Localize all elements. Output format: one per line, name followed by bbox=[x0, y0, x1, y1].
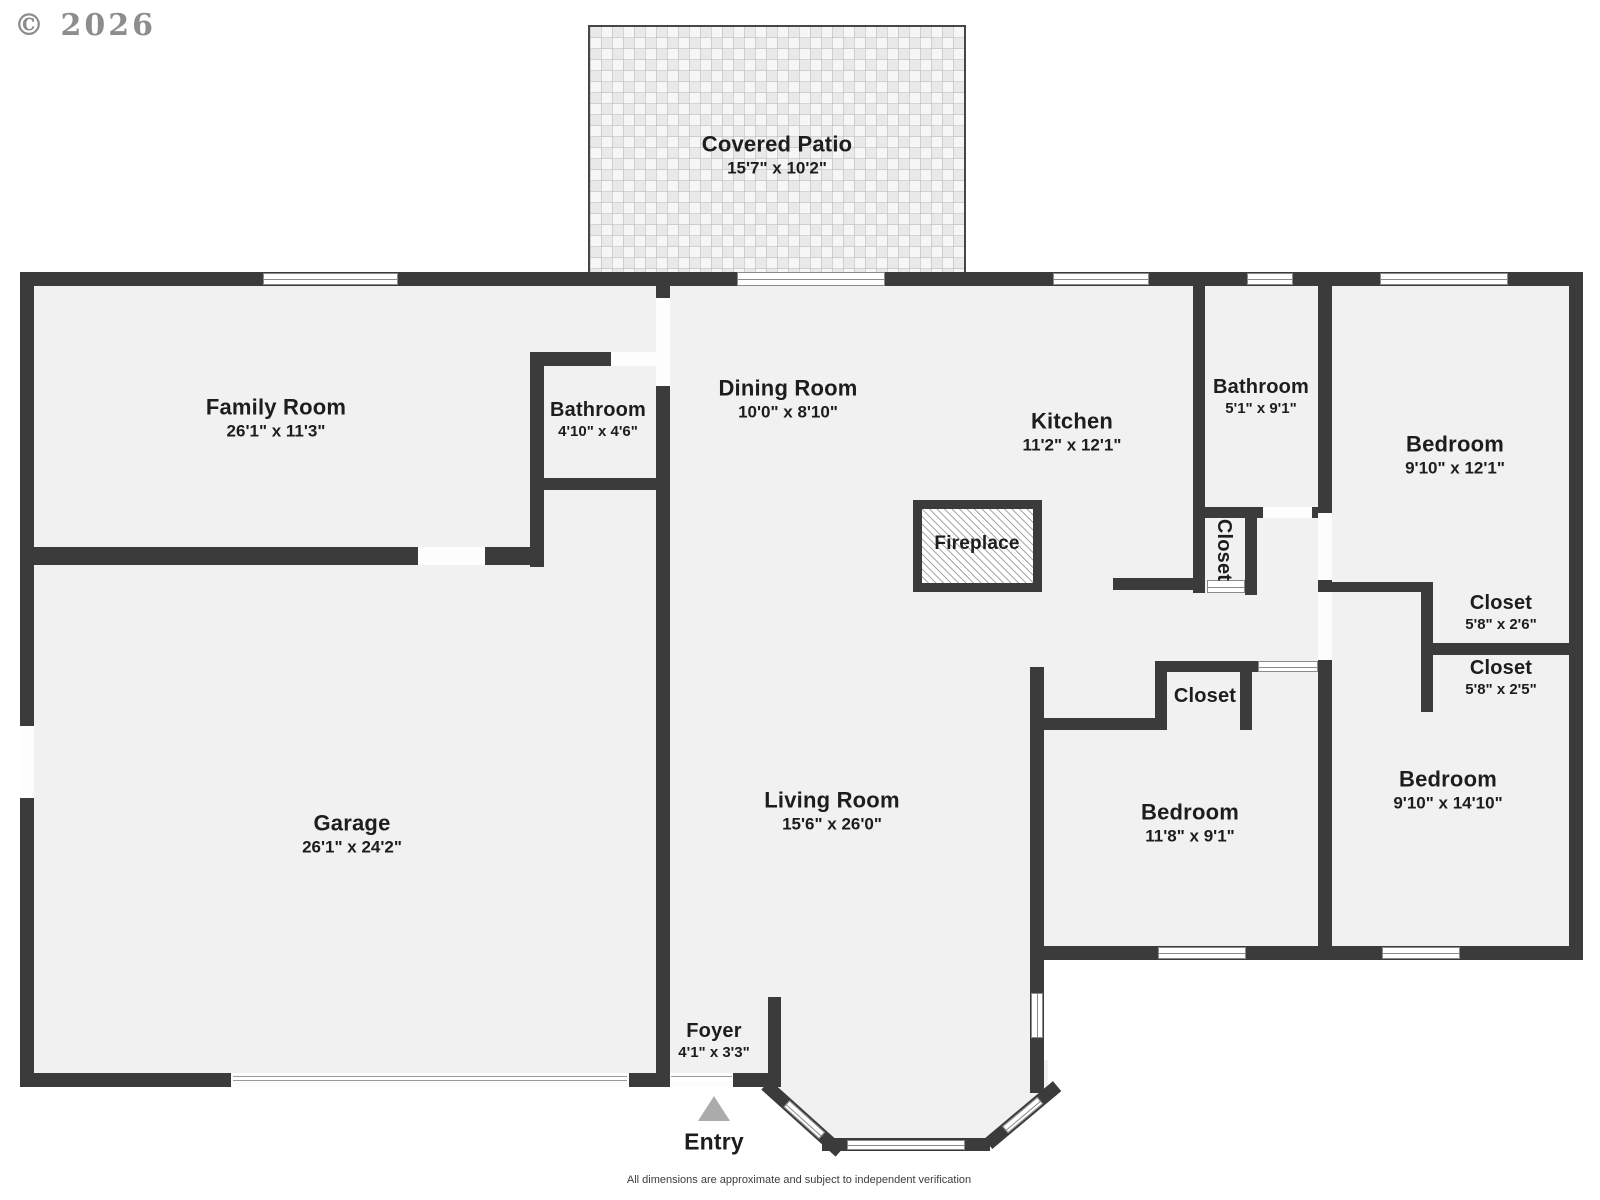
window-bedroom-bottom-right bbox=[1382, 947, 1460, 959]
foyer-name: Foyer bbox=[678, 1020, 749, 1044]
wall-family-garage-left bbox=[20, 547, 418, 565]
room-label-closet-hall: Closet bbox=[1211, 519, 1235, 581]
wall-bathroom-family-bottom bbox=[530, 478, 663, 490]
room-label-kitchen: Kitchen 11'2" x 12'1" bbox=[1023, 408, 1122, 455]
label-entry: Entry bbox=[684, 1128, 744, 1155]
door-bedroom-top-right bbox=[1318, 513, 1332, 580]
garage-dims: 26'1" x 24'2" bbox=[302, 836, 402, 857]
disclaimer-text: All dimensions are approximate and subje… bbox=[627, 1174, 971, 1186]
covered-patio-dims: 15'7" x 10'2" bbox=[702, 157, 853, 178]
window-bedroom-top-right bbox=[1380, 273, 1508, 285]
door-family-to-dining bbox=[656, 298, 670, 386]
door-patio-slider bbox=[737, 272, 885, 286]
room-label-closet-bedroom: Closet bbox=[1174, 685, 1236, 709]
door-bedroom-middle bbox=[1258, 661, 1318, 672]
bathroom-family-dims: 4'10" x 4'6" bbox=[550, 422, 646, 441]
bedroom-top-right-dims: 9'10" x 12'1" bbox=[1405, 457, 1505, 478]
door-bathroom-hall bbox=[1263, 507, 1312, 518]
dining-room-dims: 10'0" x 8'10" bbox=[718, 401, 857, 422]
room-label-covered-patio: Covered Patio 15'7" x 10'2" bbox=[702, 131, 853, 178]
closet-lower-name: Closet bbox=[1465, 657, 1536, 681]
window-family-room bbox=[263, 273, 398, 285]
door-bathroom-family bbox=[611, 352, 658, 366]
room-label-living-room: Living Room 15'6" x 26'0" bbox=[764, 787, 899, 834]
living-room-name: Living Room bbox=[764, 787, 899, 813]
entry-text: Entry bbox=[684, 1128, 744, 1155]
door-closet-area bbox=[1318, 592, 1332, 660]
wall-closet-bedroom-right bbox=[1240, 661, 1252, 730]
foyer-dims: 4'1" x 3'3" bbox=[678, 1043, 749, 1062]
room-label-closet-upper: Closet 5'8" x 2'6" bbox=[1465, 592, 1536, 634]
room-label-foyer: Foyer 4'1" x 3'3" bbox=[678, 1020, 749, 1062]
bedroom-bottom-right-name: Bedroom bbox=[1393, 766, 1502, 792]
fireplace-name: Fireplace bbox=[934, 533, 1019, 555]
room-label-family-room: Family Room 26'1" x 11'3" bbox=[206, 394, 346, 441]
window-living-room-side bbox=[1031, 993, 1043, 1038]
door-garage-line bbox=[233, 1076, 627, 1081]
door-entry-line bbox=[671, 1076, 732, 1081]
room-label-closet-lower: Closet 5'8" x 2'5" bbox=[1465, 657, 1536, 699]
wall-bedroom-middle-topleft bbox=[1032, 718, 1167, 730]
window-bathroom-hall bbox=[1247, 273, 1293, 285]
bathroom-hall-dims: 5'1" x 9'1" bbox=[1213, 399, 1309, 418]
room-label-bedroom-top-right: Bedroom 9'10" x 12'1" bbox=[1405, 431, 1505, 478]
door-closet-hall bbox=[1207, 580, 1245, 593]
closet-bedroom-name: Closet bbox=[1174, 685, 1236, 709]
wall-closet-hall-right bbox=[1245, 518, 1257, 595]
room-label-bedroom-bottom-right: Bedroom 9'10" x 14'10" bbox=[1393, 766, 1502, 813]
wall-dining-divider bbox=[656, 272, 670, 1087]
copyright-text: © 2026 bbox=[14, 8, 156, 43]
closet-upper-dims: 5'8" x 2'6" bbox=[1465, 615, 1536, 634]
bedroom-middle-name: Bedroom bbox=[1141, 799, 1239, 825]
kitchen-dims: 11'2" x 12'1" bbox=[1023, 434, 1122, 455]
window-kitchen bbox=[1053, 273, 1149, 285]
door-family-to-garage bbox=[418, 547, 485, 565]
room-label-bathroom-family: Bathroom 4'10" x 4'6" bbox=[550, 399, 646, 441]
kitchen-name: Kitchen bbox=[1023, 408, 1122, 434]
family-room-dims: 26'1" x 11'3" bbox=[206, 420, 346, 441]
wall-bottom-bedrooms bbox=[1037, 946, 1583, 960]
room-label-garage: Garage 26'1" x 24'2" bbox=[302, 810, 402, 857]
room-label-dining-room: Dining Room 10'0" x 8'10" bbox=[718, 375, 857, 422]
wall-kitchen-right bbox=[1193, 272, 1205, 593]
label-fireplace: Fireplace bbox=[934, 533, 1019, 555]
bathroom-family-name: Bathroom bbox=[550, 399, 646, 423]
wall-closets-vertical bbox=[1421, 582, 1433, 712]
bathroom-hall-name: Bathroom bbox=[1213, 376, 1309, 400]
closet-hall-name: Closet bbox=[1211, 519, 1235, 581]
wall-bathroom-family-left bbox=[530, 352, 544, 567]
dining-room-name: Dining Room bbox=[718, 375, 857, 401]
room-label-bedroom-middle: Bedroom 11'8" x 9'1" bbox=[1141, 799, 1239, 846]
covered-patio-name: Covered Patio bbox=[702, 131, 853, 157]
closet-lower-dims: 5'8" x 2'5" bbox=[1465, 680, 1536, 699]
room-label-bathroom-hall: Bathroom 5'1" x 9'1" bbox=[1213, 376, 1309, 418]
living-room-dims: 15'6" x 26'0" bbox=[764, 813, 899, 834]
wall-closets-top bbox=[1323, 582, 1433, 592]
bedroom-top-right-name: Bedroom bbox=[1405, 431, 1505, 457]
closet-upper-name: Closet bbox=[1465, 592, 1536, 616]
bedroom-middle-dims: 11'8" x 9'1" bbox=[1141, 825, 1239, 846]
wall-closets-divider bbox=[1433, 643, 1569, 655]
door-garage-side bbox=[20, 726, 34, 798]
garage-name: Garage bbox=[302, 810, 402, 836]
window-bedroom-middle bbox=[1158, 947, 1246, 959]
entry-arrow-icon bbox=[698, 1096, 730, 1121]
family-room-name: Family Room bbox=[206, 394, 346, 420]
floor-plan: © 2026 bbox=[0, 0, 1600, 1200]
window-bay-center bbox=[847, 1140, 965, 1150]
wall-right-exterior bbox=[1569, 272, 1583, 960]
bedroom-bottom-right-dims: 9'10" x 14'10" bbox=[1393, 792, 1502, 813]
wall-kitchen-bottom bbox=[1113, 578, 1205, 590]
wall-left-exterior bbox=[20, 272, 34, 1087]
